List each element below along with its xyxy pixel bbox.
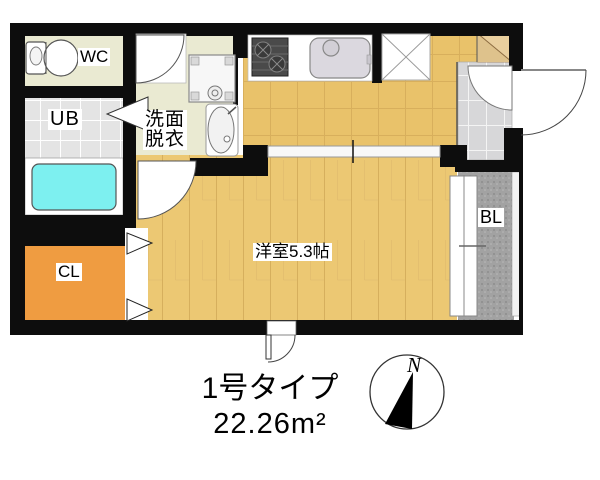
washroom-label-line2: 脱衣: [145, 130, 185, 150]
wall-wc-bottom: [25, 86, 136, 98]
kitchen-floor-edge: [458, 35, 478, 62]
wall-partition-left-stub: [243, 145, 268, 160]
wall-balcony-top: [455, 160, 523, 172]
washroom-upper-door: [136, 34, 186, 83]
main-room-label: 洋室5.3帖: [253, 243, 332, 261]
kitchen-counter: [248, 35, 372, 81]
toilet-icon: [26, 40, 78, 76]
stove-icon: [252, 38, 288, 76]
closet-folding-door: [125, 228, 152, 321]
plan-caption: 1号タイプ 22.26m²: [150, 371, 390, 442]
wall-balcony-right: [519, 172, 523, 320]
compass-north-label: N: [406, 353, 422, 377]
wall-closet-top: [25, 215, 125, 246]
bathtub-icon: [32, 164, 116, 210]
wall-right-upper: [509, 23, 523, 71]
washing-machine-icon: [189, 55, 235, 102]
balcony-label: BL: [478, 208, 504, 227]
floorplan-page: N WC UB 洗面 脱衣 CL 洋室5.3帖 BL 1号タイプ 22.26m²: [0, 0, 600, 480]
balcony-rail-strip: [512, 172, 520, 316]
wall-top: [10, 23, 523, 36]
entry-step: [477, 33, 512, 62]
washroom-label-line1: 洗面: [145, 110, 185, 130]
kitchen-sink-icon: [310, 38, 371, 78]
wall-left: [10, 23, 25, 335]
refrigerator-space-icon: [382, 34, 430, 80]
wall-counter-stub: [372, 23, 382, 83]
wall-washroom-bottom: [190, 158, 268, 176]
washroom-label: 洗面 脱衣: [143, 110, 187, 150]
washbasin-icon: [206, 104, 238, 156]
closet-floor: [25, 246, 125, 320]
wall-washroom-kitchen: [233, 23, 248, 58]
plan-area-label: 22.26m²: [150, 407, 390, 442]
wall-bottom: [10, 320, 523, 335]
wc-label: WC: [78, 48, 110, 66]
closet-label: CL: [56, 263, 82, 281]
plan-type-label: 1号タイプ: [150, 371, 390, 407]
unit-bath-label: UB: [48, 109, 82, 130]
bottom-window: [266, 321, 296, 362]
